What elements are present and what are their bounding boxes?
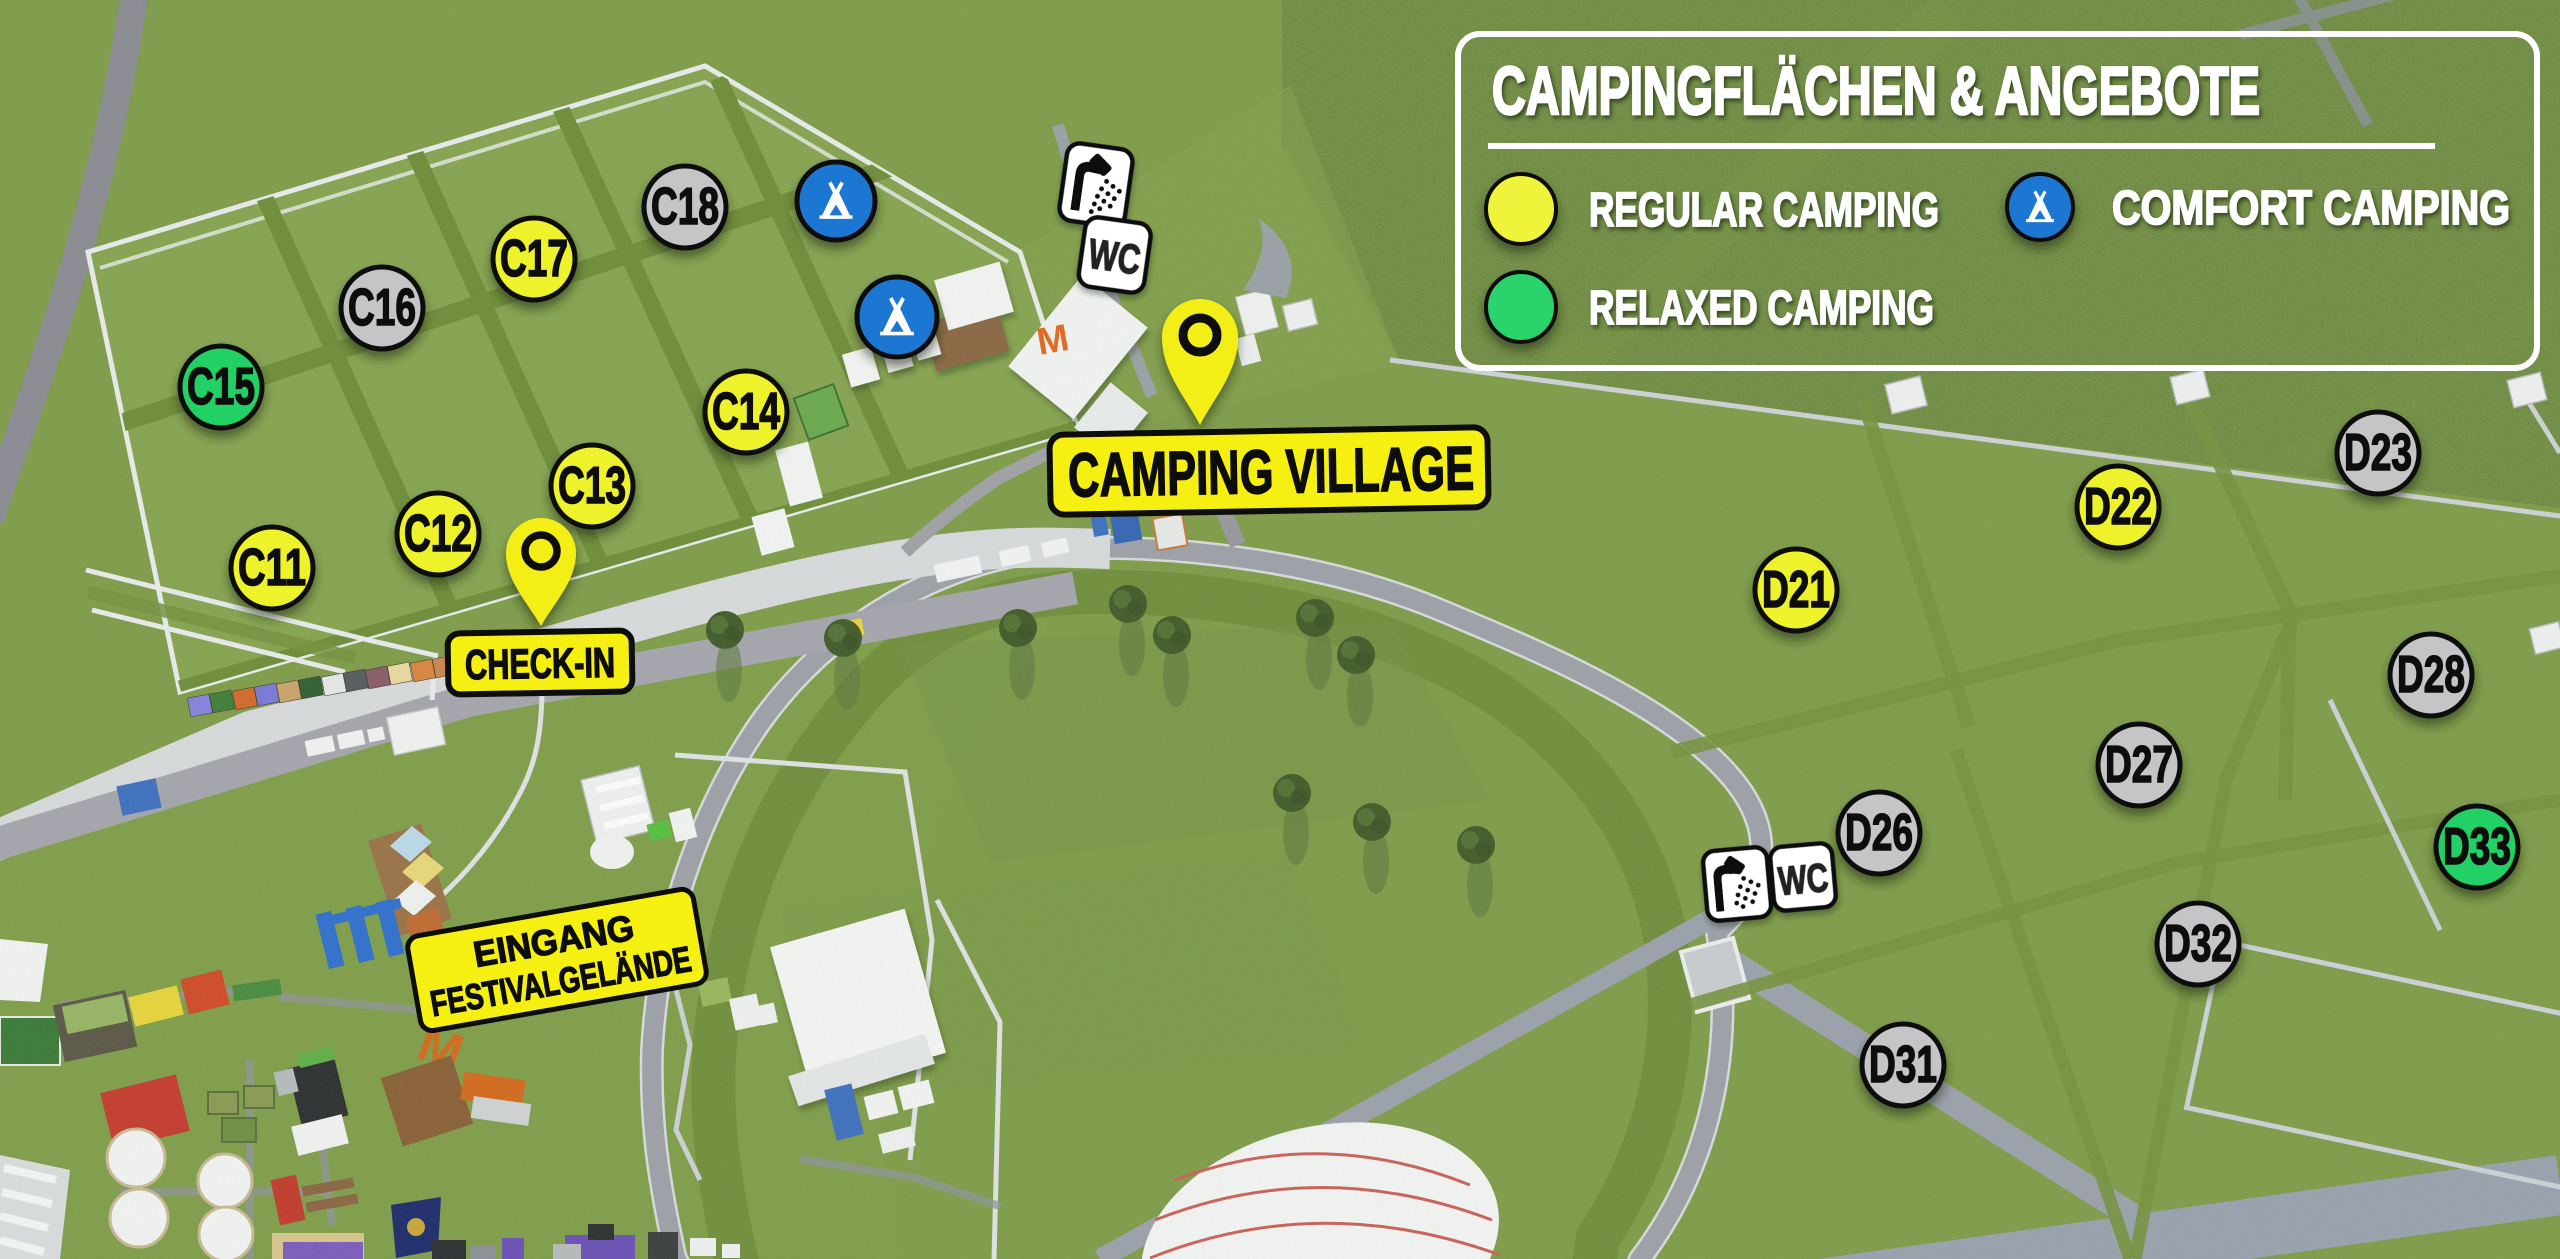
svg-text:CHECK-IN: CHECK-IN xyxy=(465,639,616,689)
svg-text:D23: D23 xyxy=(2344,424,2412,482)
svg-text:CAMPINGFLÄCHEN & ANGEBOTE: CAMPINGFLÄCHEN & ANGEBOTE xyxy=(1492,53,2260,129)
svg-text:C14: C14 xyxy=(712,383,780,441)
svg-text:C16: C16 xyxy=(348,279,416,337)
svg-text:C17: C17 xyxy=(500,230,568,288)
svg-text:D33: D33 xyxy=(2443,818,2511,876)
svg-text:CAMPING VILLAGE: CAMPING VILLAGE xyxy=(1067,434,1474,510)
svg-text:WC: WC xyxy=(1776,856,1830,904)
svg-text:D26: D26 xyxy=(1845,804,1913,862)
svg-text:RELAXED CAMPING: RELAXED CAMPING xyxy=(1589,282,1934,335)
svg-text:C15: C15 xyxy=(187,358,255,416)
svg-text:D32: D32 xyxy=(2164,915,2232,973)
svg-text:COMFORT CAMPING: COMFORT CAMPING xyxy=(2112,182,2510,235)
svg-text:C11: C11 xyxy=(238,539,306,597)
svg-text:C18: C18 xyxy=(651,178,719,236)
svg-text:C13: C13 xyxy=(558,457,626,515)
svg-text:D21: D21 xyxy=(1762,561,1830,619)
svg-text:D31: D31 xyxy=(1869,1036,1937,1094)
svg-text:D22: D22 xyxy=(2084,478,2152,536)
svg-text:REGULAR CAMPING: REGULAR CAMPING xyxy=(1589,184,1939,237)
svg-text:WC: WC xyxy=(1085,230,1143,284)
svg-text:C12: C12 xyxy=(404,505,472,563)
svg-text:D28: D28 xyxy=(2397,646,2465,704)
svg-text:D27: D27 xyxy=(2105,736,2173,794)
